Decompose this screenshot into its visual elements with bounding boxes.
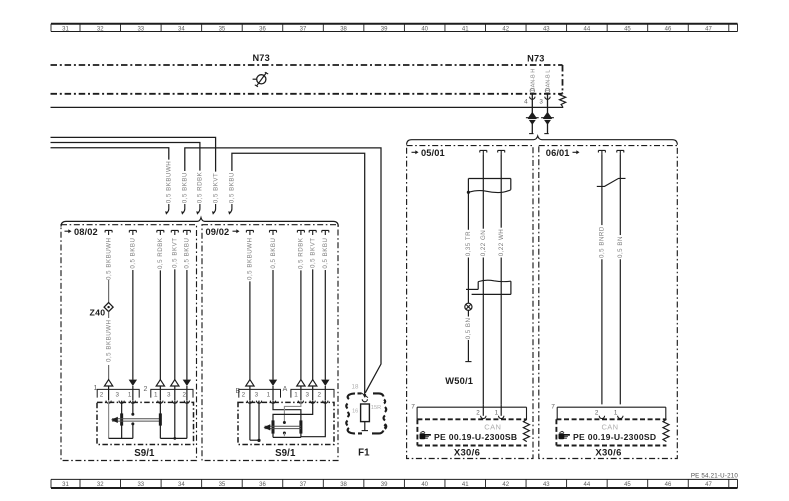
svg-text:W50/1: W50/1: [445, 376, 473, 386]
svg-text:0,5 RDBK: 0,5 RDBK: [298, 237, 305, 269]
svg-text:16: 16: [352, 408, 358, 414]
svg-text:3: 3: [255, 391, 259, 398]
svg-text:37: 37: [300, 26, 307, 32]
svg-text:2: 2: [595, 410, 599, 417]
svg-text:0,5 RDBK: 0,5 RDBK: [157, 237, 164, 269]
svg-text:CAN-B L: CAN-B L: [546, 70, 552, 92]
svg-text:0,5 BKBU: 0,5 BKBU: [130, 238, 137, 269]
svg-text:1: 1: [614, 410, 618, 417]
svg-text:2: 2: [144, 386, 148, 393]
svg-text:0,5 BKBU: 0,5 BKBU: [182, 172, 189, 203]
svg-text:15R: 15R: [371, 405, 381, 411]
svg-text:46: 46: [665, 26, 672, 32]
svg-text:CAN: CAN: [484, 422, 501, 431]
svg-text:06/01: 06/01: [546, 148, 570, 158]
svg-text:0,5 BN: 0,5 BN: [465, 318, 472, 340]
svg-text:7: 7: [551, 403, 555, 410]
svg-text:43: 43: [543, 26, 550, 32]
svg-text:CAN: CAN: [601, 422, 618, 431]
svg-text:39: 39: [381, 482, 388, 488]
svg-text:2: 2: [317, 391, 321, 398]
svg-text:35: 35: [219, 482, 226, 488]
svg-text:A: A: [283, 386, 288, 393]
svg-text:0,5 BKBU: 0,5 BKBU: [229, 172, 236, 203]
svg-text:38: 38: [340, 26, 347, 32]
svg-text:1: 1: [267, 391, 271, 398]
svg-text:0,5 BKBUWH: 0,5 BKBUWH: [166, 161, 173, 203]
svg-text:Z40: Z40: [90, 307, 106, 317]
svg-text:S9/1: S9/1: [275, 448, 296, 459]
svg-text:44: 44: [584, 482, 591, 488]
svg-text:46: 46: [665, 482, 672, 488]
svg-text:31: 31: [62, 482, 69, 488]
svg-text:35: 35: [219, 26, 226, 32]
svg-text:N73: N73: [252, 53, 269, 63]
svg-text:47: 47: [705, 482, 712, 488]
svg-text:08/02: 08/02: [74, 227, 98, 237]
svg-text:0,5 BKVT: 0,5 BKVT: [172, 238, 179, 268]
svg-text:0,22 WH: 0,22 WH: [498, 229, 505, 257]
svg-text:2: 2: [476, 410, 480, 417]
svg-text:CAN-B H: CAN-B H: [531, 69, 537, 92]
svg-text:41: 41: [462, 482, 469, 488]
svg-text:38: 38: [340, 482, 347, 488]
svg-text:0,5 BKBUWH: 0,5 BKBUWH: [105, 320, 112, 362]
svg-text:1: 1: [128, 391, 132, 398]
svg-text:32: 32: [97, 482, 104, 488]
svg-text:36: 36: [259, 482, 266, 488]
svg-text:3: 3: [539, 99, 543, 106]
svg-text:05/01: 05/01: [421, 148, 445, 158]
svg-text:X30/6: X30/6: [595, 447, 621, 458]
svg-text:S9/1: S9/1: [134, 448, 155, 459]
svg-text:09/02: 09/02: [206, 227, 230, 237]
svg-text:36: 36: [259, 26, 266, 32]
svg-text:F1: F1: [358, 448, 370, 459]
svg-text:PE 54.21-U-210: PE 54.21-U-210: [691, 473, 739, 480]
svg-text:0,22 GN: 0,22 GN: [480, 230, 487, 257]
svg-text:0,5 BKBUWH: 0,5 BKBUWH: [247, 238, 254, 280]
svg-text:1: 1: [294, 391, 298, 398]
svg-text:3: 3: [167, 391, 171, 398]
svg-text:0,5 BKVT: 0,5 BKVT: [310, 238, 317, 268]
svg-text:2: 2: [183, 391, 187, 398]
svg-text:0,5 BKVT: 0,5 BKVT: [212, 173, 219, 203]
svg-text:0,5 RDBK: 0,5 RDBK: [197, 171, 204, 203]
svg-text:37: 37: [300, 482, 307, 488]
svg-text:3: 3: [305, 391, 309, 398]
svg-text:PE 00.19-U-2300SD: PE 00.19-U-2300SD: [573, 432, 656, 442]
svg-text:0,5 BKBU: 0,5 BKBU: [322, 238, 329, 269]
svg-text:PE 00.19-U-2300SB: PE 00.19-U-2300SB: [434, 432, 517, 442]
svg-text:34: 34: [178, 482, 185, 488]
svg-text:32: 32: [97, 26, 104, 32]
svg-text:3: 3: [115, 391, 119, 398]
svg-text:X30/6: X30/6: [454, 447, 480, 458]
svg-text:45: 45: [624, 26, 631, 32]
svg-text:40: 40: [421, 482, 428, 488]
svg-text:33: 33: [137, 482, 144, 488]
svg-text:2: 2: [242, 391, 246, 398]
svg-text:0,5 BKBU: 0,5 BKBU: [270, 238, 277, 269]
svg-text:4: 4: [524, 99, 528, 106]
svg-text:0,5 BKBU: 0,5 BKBU: [184, 238, 191, 269]
svg-text:1: 1: [154, 391, 158, 398]
svg-text:18: 18: [352, 384, 359, 391]
svg-text:0,5 BNRD: 0,5 BNRD: [599, 226, 606, 258]
svg-text:43: 43: [543, 482, 550, 488]
svg-text:31: 31: [62, 26, 69, 32]
svg-text:39: 39: [381, 26, 388, 32]
svg-text:0,5 BKBUWH: 0,5 BKBUWH: [105, 238, 112, 280]
svg-text:40: 40: [421, 26, 428, 32]
svg-text:42: 42: [502, 482, 509, 488]
svg-text:42: 42: [502, 26, 509, 32]
svg-text:44: 44: [584, 26, 591, 32]
svg-text:41: 41: [462, 26, 469, 32]
svg-text:7: 7: [411, 403, 415, 410]
svg-text:33: 33: [137, 26, 144, 32]
svg-text:2: 2: [100, 391, 104, 398]
svg-text:34: 34: [178, 26, 185, 32]
svg-text:N73: N73: [527, 54, 544, 64]
svg-text:47: 47: [705, 26, 712, 32]
svg-text:0,35 TR: 0,35 TR: [465, 231, 472, 256]
svg-text:45: 45: [624, 482, 631, 488]
svg-text:1: 1: [495, 410, 499, 417]
svg-text:0,5 BN: 0,5 BN: [617, 236, 624, 258]
